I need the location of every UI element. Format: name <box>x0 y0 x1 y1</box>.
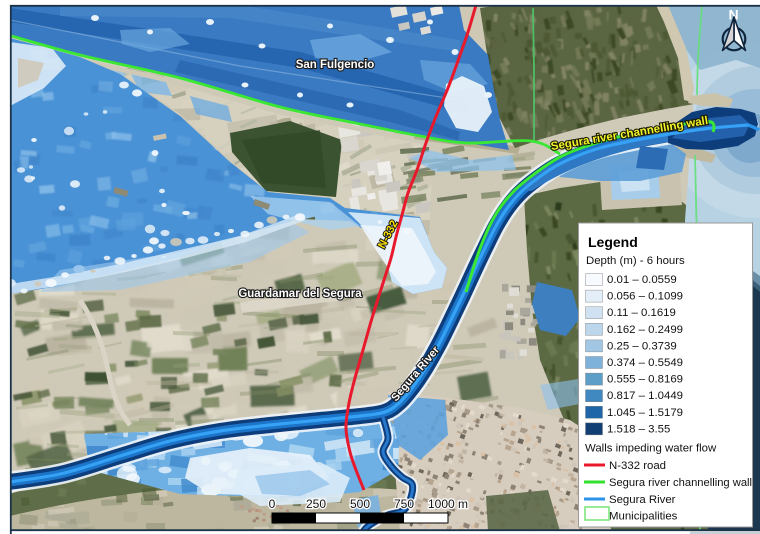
svg-text:0.056 – 0.1099: 0.056 – 0.1099 <box>607 291 683 303</box>
svg-text:0.374 – 0.5549: 0.374 – 0.5549 <box>607 357 683 369</box>
svg-text:250: 250 <box>306 497 326 511</box>
svg-text:0: 0 <box>269 497 276 511</box>
svg-text:0.25 – 0.3739: 0.25 – 0.3739 <box>607 340 677 352</box>
svg-text:Guardamar del Segura: Guardamar del Segura <box>238 288 362 300</box>
svg-text:San Fulgencio: San Fulgencio <box>296 59 375 71</box>
svg-text:0.162 – 0.2499: 0.162 – 0.2499 <box>607 324 683 336</box>
svg-text:500: 500 <box>350 497 370 511</box>
svg-text:Segura river channelling wall: Segura river channelling wall <box>609 477 752 489</box>
svg-text:0.555 – 0.8169: 0.555 – 0.8169 <box>607 374 683 386</box>
svg-text:1000 m: 1000 m <box>428 497 468 511</box>
svg-text:Segura River: Segura River <box>609 494 676 506</box>
svg-text:0.11 – 0.1619: 0.11 – 0.1619 <box>607 307 676 319</box>
svg-text:1.045 – 1.5179: 1.045 – 1.5179 <box>607 407 683 419</box>
svg-text:N-332 road: N-332 road <box>609 460 666 472</box>
svg-text:Legend: Legend <box>588 234 638 250</box>
svg-text:Municipalities: Municipalities <box>609 511 678 523</box>
svg-text:750: 750 <box>394 497 414 511</box>
svg-text:Walls impeding water flow: Walls impeding water flow <box>585 443 717 455</box>
svg-text:0.01 – 0.0559: 0.01 – 0.0559 <box>607 274 677 286</box>
svg-text:1.518 – 3.55: 1.518 – 3.55 <box>607 423 670 435</box>
svg-text:Depth (m) - 6 hours: Depth (m) - 6 hours <box>586 255 685 267</box>
svg-text:0.817 – 1.0449: 0.817 – 1.0449 <box>607 390 683 402</box>
